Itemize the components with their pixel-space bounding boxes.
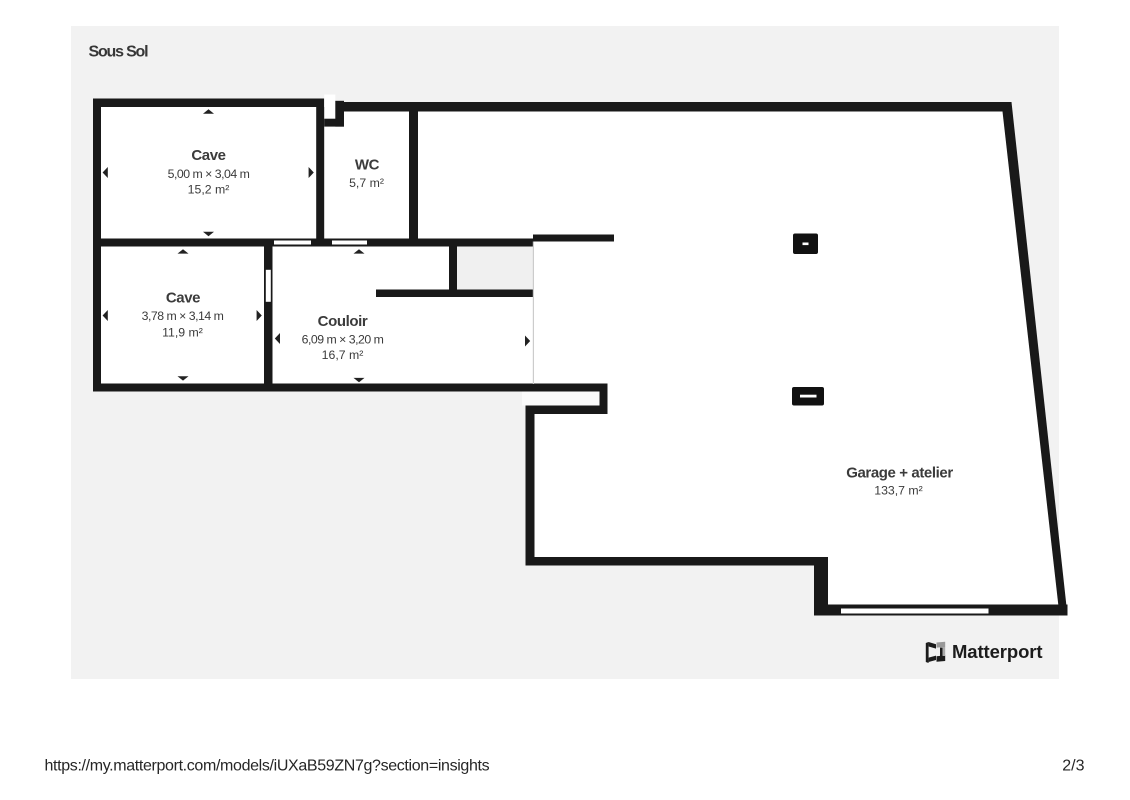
svg-text:133,7 m²: 133,7 m² — [874, 484, 923, 498]
svg-text:3,78 m × 3,14 m: 3,78 m × 3,14 m — [142, 309, 224, 323]
svg-text:2/3: 2/3 — [1062, 758, 1084, 775]
svg-text:Matterport: Matterport — [952, 641, 1042, 662]
svg-text:5,7 m²: 5,7 m² — [349, 176, 384, 190]
svg-text:Garage + atelier: Garage + atelier — [846, 465, 953, 482]
svg-text:6,09 m × 3,20 m: 6,09 m × 3,20 m — [302, 333, 384, 347]
svg-text:https://my.matterport.com/mode: https://my.matterport.com/models/iUXaB59… — [45, 758, 490, 775]
svg-text:Cave: Cave — [191, 147, 225, 164]
svg-text:15,2 m²: 15,2 m² — [188, 183, 230, 197]
svg-text:11,9 m²: 11,9 m² — [162, 326, 203, 340]
svg-text:WC: WC — [355, 157, 380, 174]
svg-text:16,7 m²: 16,7 m² — [322, 348, 364, 362]
svg-text:Couloir: Couloir — [318, 313, 368, 330]
svg-text:5,00 m × 3,04 m: 5,00 m × 3,04 m — [168, 167, 250, 181]
svg-text:Sous Sol: Sous Sol — [89, 44, 149, 61]
svg-text:Cave: Cave — [166, 290, 200, 307]
